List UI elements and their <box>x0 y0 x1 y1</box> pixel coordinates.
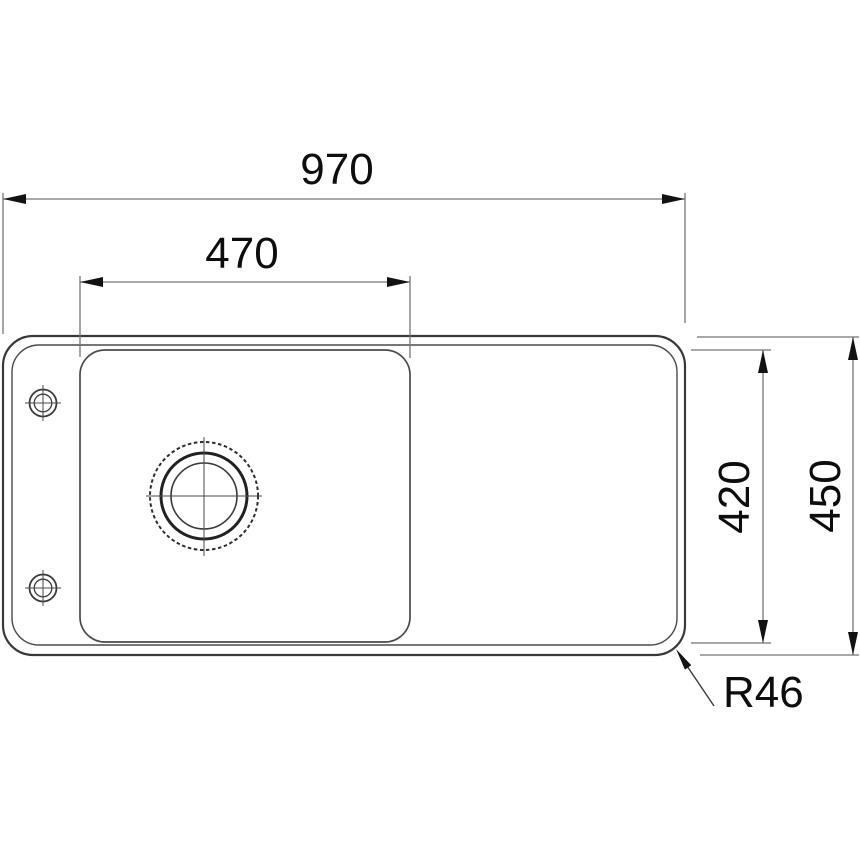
dim-label-bowl-width: 470 <box>205 229 278 278</box>
drawing-canvas: 970 470 420 450 R46 <box>0 0 860 860</box>
tap-hole-bottom <box>25 570 61 606</box>
sink-technical-drawing: 970 470 420 450 R46 <box>0 0 860 860</box>
leader-arrowhead <box>676 649 691 670</box>
arrowhead-left <box>80 277 103 287</box>
sink-outline <box>3 336 685 655</box>
radius-callout: R46 <box>676 649 804 717</box>
arrowhead-bottom <box>848 632 858 655</box>
sink-outer-edge <box>3 336 685 655</box>
dim-inner-depth: 420 <box>691 350 771 643</box>
dim-label-overall-depth: 450 <box>801 459 850 532</box>
arrowhead-right <box>387 277 410 287</box>
dim-label-overall-width: 970 <box>300 145 373 194</box>
arrowhead-right <box>662 194 685 204</box>
arrowhead-bottom <box>758 620 768 643</box>
dim-overall-width: 970 <box>3 145 685 334</box>
sink-inner-rim <box>12 345 677 645</box>
dim-label-inner-depth: 420 <box>710 460 759 533</box>
dim-label-corner-radius: R46 <box>723 668 804 717</box>
arrowhead-top <box>848 337 858 360</box>
drain <box>146 437 262 556</box>
tap-hole-top <box>25 385 61 421</box>
arrowhead-top <box>758 350 768 373</box>
dim-bowl-width: 470 <box>80 229 410 358</box>
arrowhead-left <box>3 194 26 204</box>
